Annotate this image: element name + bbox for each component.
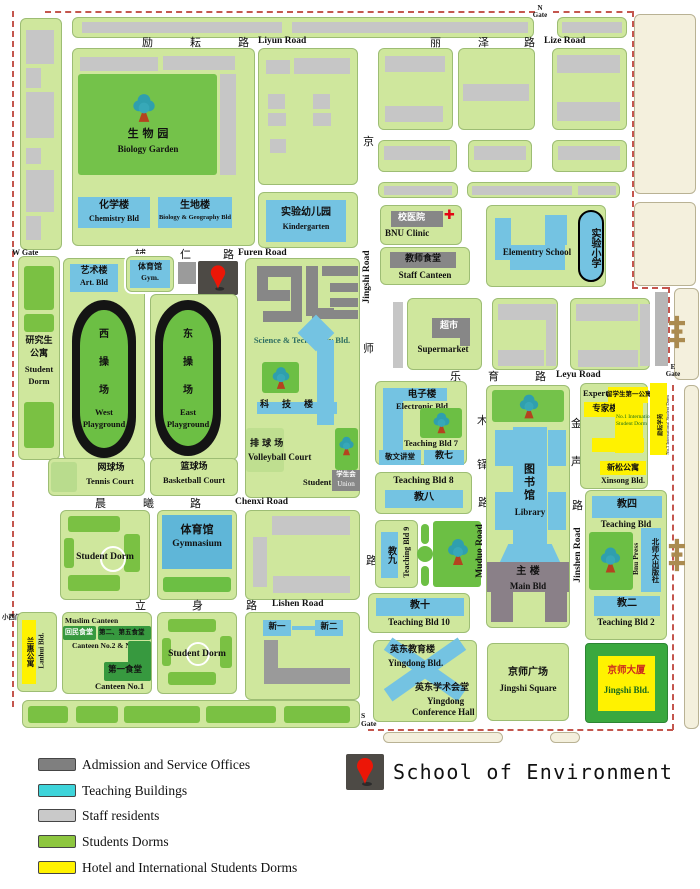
- yingdong-hall-label-en: Conference Hall: [412, 708, 475, 717]
- exp-primary-bld: 实验小学: [578, 210, 604, 282]
- lanhui-bld: 兰惠公寓: [22, 620, 36, 684]
- legend-label: Admission and Service Offices: [82, 757, 250, 773]
- dorm-bld: [168, 619, 216, 632]
- lanhui-label-en: Lanhui Bld.: [38, 629, 45, 673]
- west-pg-char: 西: [72, 330, 136, 341]
- building-footprint: [472, 186, 572, 195]
- teaching10-label-en: Teaching Bld 10: [368, 618, 470, 627]
- building-footprint: [263, 311, 302, 322]
- road-muduo-label: Muduo Road: [475, 515, 485, 587]
- school-of-environment-marker: [198, 261, 238, 295]
- biology-garden: [78, 74, 217, 175]
- legend-swatch-hotel: [38, 861, 76, 874]
- title-pin-box: [346, 754, 384, 790]
- student-union-label-en: Union: [332, 481, 360, 488]
- intl-dorm3-label: 励耘学苑 No.3 International Student Dorm: [647, 390, 671, 460]
- building-footprint: [294, 58, 350, 74]
- dorm-bld: [68, 516, 120, 532]
- legend-label: Staff residents: [82, 808, 159, 824]
- building-footprint: [178, 262, 196, 284]
- yingdong-hall-label: 英东学术会堂: [415, 684, 469, 693]
- building-footprint: [393, 302, 403, 368]
- road-leyu-char: 路: [535, 368, 546, 384]
- offmap-panel: [634, 202, 696, 286]
- jingshi-bld-label-en: Jingshi Bld.: [598, 686, 655, 695]
- road-leyu-char: 育: [488, 368, 499, 384]
- jingshi-bld-label: 京师大厦: [598, 666, 655, 676]
- road-chenxi-char: 路: [190, 495, 201, 511]
- east-gate-arch-icon: [668, 314, 685, 350]
- grad-dorm-label: 研究生: [18, 337, 60, 346]
- legend-swatch-staff: [38, 809, 76, 822]
- main-bld-label: 主 楼: [487, 567, 569, 578]
- location-pin-icon: [209, 264, 227, 292]
- west-pg-label-en: Playground: [72, 420, 136, 429]
- location-pin-icon: [355, 757, 375, 787]
- teaching8-label-en: Teaching Bld 8: [375, 477, 472, 487]
- dorm-bld: [168, 672, 216, 685]
- building-footprint: [76, 706, 118, 723]
- building-footprint: [26, 216, 41, 240]
- canteen25-label: 第二、第五食堂: [99, 629, 145, 636]
- road-lishen-label: Lishen Road: [272, 599, 323, 609]
- road-lishen-char: 立: [135, 597, 146, 613]
- gate-north-label: NGate: [528, 5, 552, 20]
- clinic-label-en: BNU Clinic: [385, 229, 429, 238]
- building-footprint: [292, 626, 315, 630]
- elementary-label: Elementry School: [492, 248, 582, 257]
- tree-icon: [432, 410, 451, 436]
- building-footprint: [562, 22, 622, 33]
- road-chenxi-char: 曦: [143, 495, 154, 511]
- jingshi-square-label-en: Jingshi Square: [487, 684, 569, 693]
- campus-boundary: [632, 11, 634, 287]
- offmap-panel: [684, 385, 699, 729]
- building-footprint: [26, 148, 41, 164]
- supermarket-label-en: Supermarket: [408, 345, 478, 354]
- staff-canteen-label-en: Staff Canteen: [385, 271, 465, 280]
- page-title: School of Environment: [393, 760, 673, 784]
- gymnasium-label-en: Gymnasium: [162, 540, 232, 550]
- building-footprint: [557, 102, 620, 121]
- campus-map-page: NGate 励 耘 路 Liyun Road 丽 泽 路 Lize Road 生…: [0, 0, 700, 889]
- building-footprint: [498, 304, 550, 320]
- library-bld: [499, 544, 561, 564]
- xinsong-label-en: Xinsong Bld.: [598, 477, 648, 485]
- west-pg-char: 操: [72, 358, 136, 369]
- gym-small-label: 体育馆: [130, 263, 170, 271]
- east-pg-char: 场: [155, 386, 221, 397]
- yingdong-hall-label-en: Yingdong: [427, 697, 464, 706]
- legend-swatch-teaching: [38, 784, 76, 797]
- building-footprint: [292, 22, 528, 33]
- basketball-label-en: Basketball Court: [148, 476, 240, 485]
- student-union-bld: 学生会 Union: [332, 470, 360, 491]
- kindergarten-label: 实验幼儿园: [266, 208, 346, 219]
- tennis-court: [51, 462, 77, 492]
- offmap-panel: [383, 732, 503, 743]
- teaching7-label: 教七: [424, 452, 464, 461]
- building-footprint: [26, 30, 54, 64]
- east-pg-char: 操: [155, 358, 221, 369]
- building-footprint: [330, 283, 358, 292]
- road-lishen-char: 路: [246, 597, 257, 613]
- road-lize-label: Lize Road: [544, 36, 585, 46]
- yingdong-label: 英东教育楼: [390, 646, 435, 655]
- library-label: 图书馆: [523, 456, 535, 508]
- building-footprint: [640, 304, 650, 366]
- tree-icon: [446, 535, 470, 569]
- tennis-label-en: Tennis Court: [75, 477, 145, 486]
- grad-dorm-label-en: Student: [18, 365, 60, 374]
- bnu-press-label-en: Bnu Press: [632, 529, 640, 589]
- xinyi-label: 新一: [263, 623, 291, 632]
- tree-icon: [271, 365, 291, 391]
- red-cross-icon: ✚: [444, 209, 455, 223]
- tree-icon: [338, 434, 355, 458]
- basketball-label: 篮球场: [150, 463, 238, 472]
- library-label-en: Library: [504, 508, 556, 517]
- campus-boundary: [368, 729, 673, 731]
- canteen1-label: 第一食堂: [108, 666, 142, 675]
- intl-dorm1-bld: [592, 438, 644, 452]
- canteen1-label-en: Canteen No.1: [95, 682, 144, 691]
- building-footprint: [82, 22, 282, 33]
- bio-geo-label-en: Biology & Geography Bld: [146, 215, 244, 222]
- teaching8-label: 教八: [385, 493, 463, 504]
- building-footprint: [558, 146, 620, 160]
- art-label-en: Art. Bld: [70, 279, 118, 287]
- building-footprint: [313, 113, 331, 126]
- legend-label: Teaching Buildings: [82, 783, 187, 799]
- legend-swatch-dorms: [38, 835, 76, 848]
- legend-swatch-admission: [38, 758, 76, 771]
- jingshi-square-block: [487, 643, 569, 721]
- road-chenxi-label: Chenxi Road: [235, 497, 288, 507]
- campus-boundary: [632, 287, 668, 289]
- building-footprint: [385, 106, 443, 122]
- keji-char: 技: [282, 401, 291, 410]
- building-footprint: [384, 146, 450, 160]
- building-footprint: [24, 266, 54, 310]
- building-footprint: [24, 402, 54, 448]
- building-footprint: [220, 74, 236, 175]
- main-bld: [545, 592, 567, 622]
- building-footprint: [385, 56, 445, 72]
- bnu-press-bld: 北师大出版社: [641, 528, 661, 592]
- muslim-canteen-label: 回民食堂: [65, 629, 93, 636]
- gate-south-label: SGate: [361, 712, 376, 728]
- tree-icon: [518, 392, 540, 421]
- gate-east-label: EGate: [658, 364, 688, 379]
- building-footprint: [546, 304, 556, 366]
- volleyball-label-en: Volleyball Court: [248, 453, 311, 462]
- electronic-label: 电子楼: [392, 390, 452, 400]
- dorm-quad2-label: Student Dorm: [159, 650, 235, 660]
- biology-garden-label-en: Biology Garden: [88, 145, 208, 154]
- main-bld-label-en: Main Bld: [487, 582, 569, 591]
- building-footprint: [474, 146, 526, 160]
- building-footprint: [163, 56, 235, 70]
- east-pg-char: 东: [155, 330, 221, 341]
- intl-dorm1-label: 留学生第一公寓: [606, 391, 652, 398]
- building-footprint: [498, 350, 544, 366]
- staff-canteen-label: 教师食堂: [390, 255, 456, 264]
- building-footprint: [655, 292, 668, 366]
- keji-char: 科: [260, 401, 269, 410]
- gymnasium-label: 体育馆: [162, 524, 232, 536]
- biology-garden-label: 生 物 园: [88, 128, 208, 140]
- offmap-panel: [634, 14, 696, 194]
- building-footprint: [330, 298, 358, 307]
- dorm-quad1-label: Student Dorm: [62, 553, 148, 563]
- lawn: [421, 566, 429, 586]
- building-footprint: [576, 304, 638, 321]
- east-pg-label-en: East: [155, 408, 221, 417]
- building-footprint: [268, 94, 285, 109]
- muslim-canteen-label-en: Muslim Canteen: [65, 617, 118, 625]
- road-furen-char: 仁: [180, 246, 191, 262]
- building-footprint: [384, 186, 452, 195]
- grad-dorm-label-en: Dorm: [18, 377, 60, 386]
- building-footprint: [26, 92, 54, 138]
- road-jinshen-char: 路: [572, 497, 583, 513]
- tennis-label: 网球场: [78, 464, 144, 473]
- building-footprint: [272, 516, 350, 535]
- teaching10-label: 教十: [376, 601, 464, 612]
- building-footprint: [557, 55, 620, 73]
- building-footprint: [273, 576, 350, 593]
- west-pg-char: 场: [72, 386, 136, 397]
- building-footprint: [264, 668, 350, 684]
- supermarket-label: 超市: [440, 322, 458, 331]
- road-jingshi-label: Jingshi Road: [362, 241, 372, 313]
- kindergarten-label-en: Kindergarten: [266, 223, 346, 231]
- building-footprint: [268, 113, 286, 126]
- road-jingshi-char: 师: [363, 340, 374, 356]
- volleyball-label: 排 球 场: [250, 440, 283, 449]
- teaching9-label-en: Teaching Bld 9: [403, 520, 411, 584]
- building-footprint: [313, 94, 330, 109]
- teaching2-label-en: Teaching Bld 2: [585, 618, 667, 627]
- intl-dorm3-bld: 励耘学苑 No.3 International Student Dorm: [650, 383, 667, 455]
- road-furen-label: Furen Road: [238, 248, 287, 258]
- road-chenxi-char: 晨: [95, 495, 106, 511]
- gate-arch-icon: [668, 536, 685, 574]
- building-footprint: [578, 350, 638, 367]
- teaching2-label: 教二: [594, 599, 660, 610]
- tree-icon: [131, 92, 157, 124]
- campus-boundary: [12, 11, 14, 707]
- xinsong-label: 新松公寓: [600, 464, 646, 472]
- building-footprint: [257, 290, 290, 301]
- art-label: 艺术楼: [70, 267, 118, 276]
- teaching9-bld: 教九: [381, 532, 398, 578]
- library-bld: [495, 430, 513, 466]
- legend-label: Hotel and International Students Dorms: [82, 860, 297, 876]
- building-footprint: [578, 186, 616, 195]
- grad-dorm-label: 公寓: [18, 350, 60, 359]
- lawn: [421, 524, 429, 544]
- building-footprint: [124, 706, 200, 723]
- building-footprint: [253, 537, 267, 587]
- teaching4-label: 教四: [592, 500, 662, 511]
- student-union-label: 学生会: [332, 471, 360, 478]
- jingwen-label: 敬文讲堂: [379, 453, 421, 461]
- road-lishen-char: 身: [192, 597, 203, 613]
- building-footprint: [284, 706, 350, 723]
- xiner-label: 新二: [315, 623, 343, 632]
- library-bld: [548, 430, 566, 466]
- building-footprint: [26, 68, 41, 88]
- west-pg-label-en: West: [72, 408, 136, 417]
- jingshi-square-label: 京师广场: [487, 668, 569, 679]
- road-jinshen-label: Jinshen Road: [573, 519, 583, 591]
- road-jingshi-char: 京: [363, 133, 374, 149]
- tree-icon: [599, 544, 622, 576]
- gym-small-label-en: Gym.: [130, 274, 170, 282]
- building-footprint: [270, 139, 286, 153]
- road-liyun-label: Liyun Road: [258, 36, 306, 46]
- clinic-label: 校医院: [398, 214, 425, 223]
- building-footprint: [24, 314, 54, 332]
- dorm-bld: [68, 575, 120, 591]
- offmap-panel: [550, 732, 580, 743]
- keji-char: 楼: [304, 401, 313, 410]
- building-footprint: [80, 57, 158, 71]
- legend-label: Students Dorms: [82, 834, 169, 850]
- yingdong-label-en: Yingdong Bld.: [388, 659, 443, 668]
- building-footprint: [206, 706, 276, 723]
- teaching7-label-en: Teaching Bld 7: [398, 439, 464, 448]
- building-footprint: [545, 215, 567, 245]
- chemistry-label: 化学楼: [78, 201, 150, 212]
- campus-boundary: [45, 11, 535, 13]
- lawn: [163, 577, 231, 592]
- lawn: [417, 546, 433, 562]
- building-footprint: [463, 84, 529, 101]
- building-footprint: [266, 60, 290, 74]
- bio-geo-label: 生地楼: [158, 201, 232, 212]
- building-footprint: [28, 706, 68, 723]
- road-furen-char: 路: [223, 246, 234, 262]
- volleyball-court: [246, 428, 284, 472]
- building-footprint: [322, 266, 358, 276]
- student-union-label-en: Student: [303, 478, 331, 487]
- east-pg-label-en: Playground: [155, 420, 221, 429]
- chemistry-label-en: Chemistry Bld: [78, 215, 150, 223]
- campus-boundary: [553, 11, 633, 13]
- main-bld: [491, 592, 513, 622]
- building-footprint: [26, 170, 54, 212]
- road-leyu-label: Leyu Road: [556, 370, 601, 380]
